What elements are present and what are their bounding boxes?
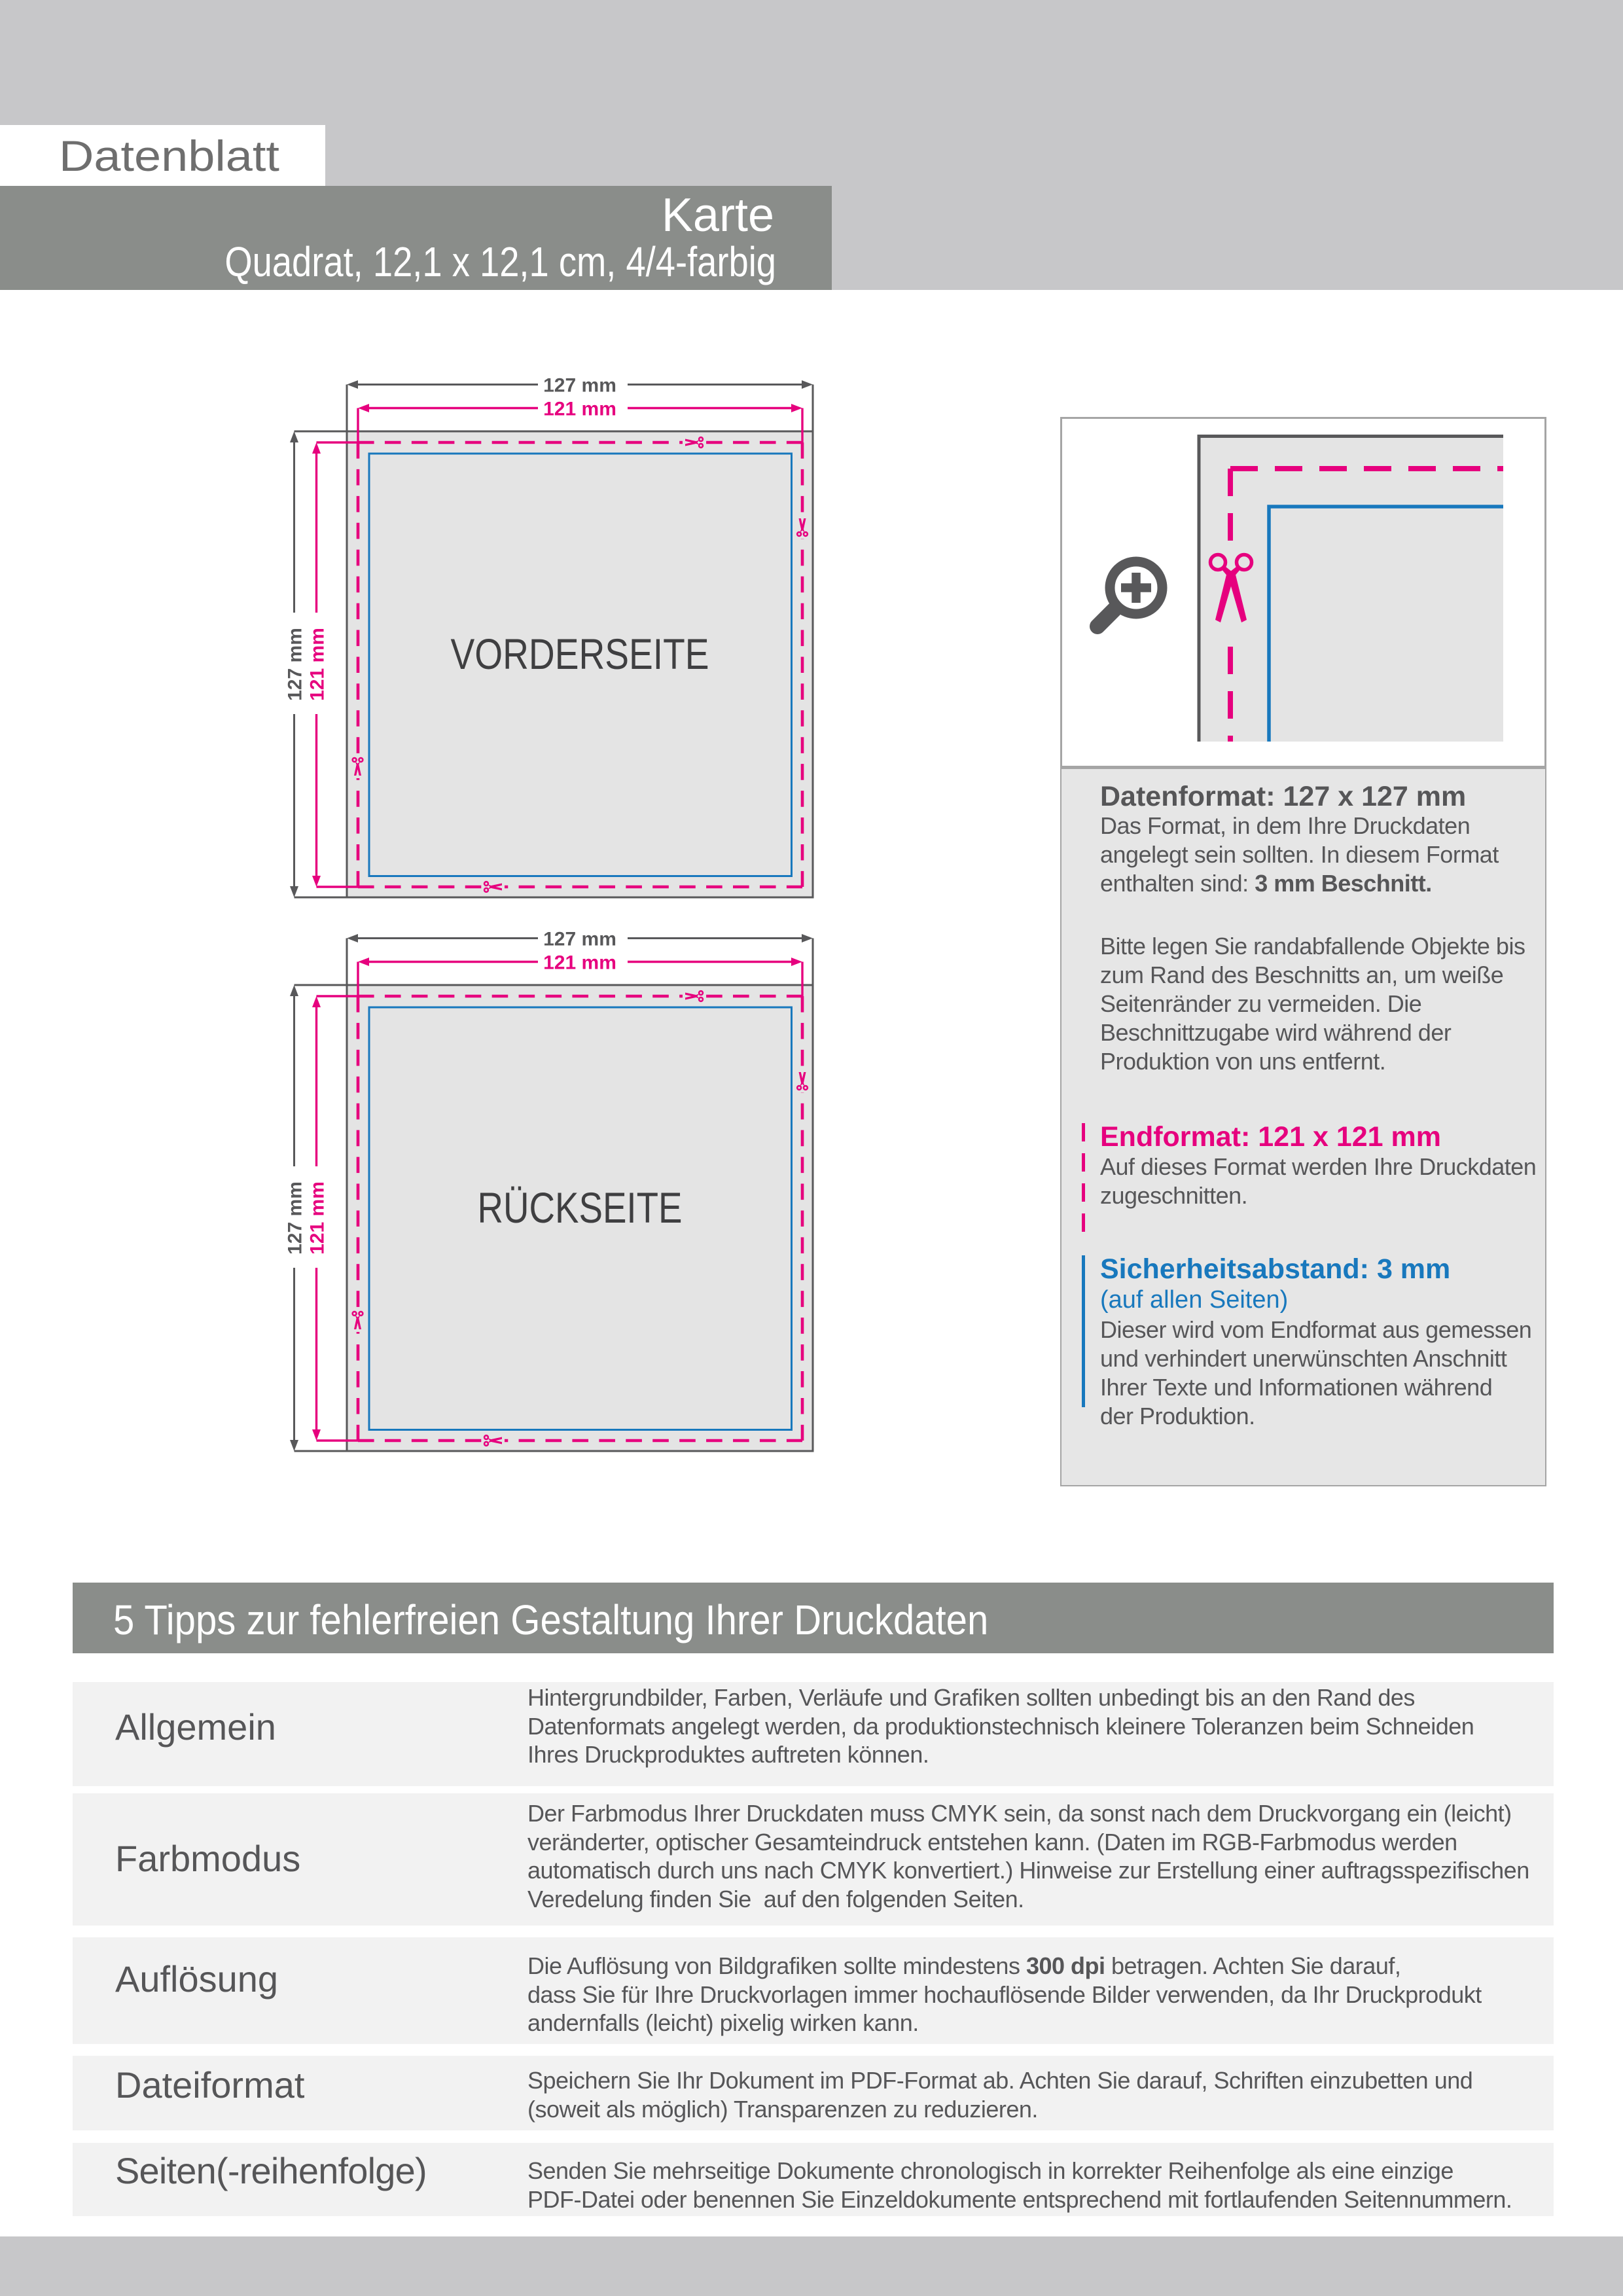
svg-text:VORDERSEITE: VORDERSEITE <box>451 630 709 678</box>
svg-text:RÜCKSEITE: RÜCKSEITE <box>478 1183 683 1232</box>
